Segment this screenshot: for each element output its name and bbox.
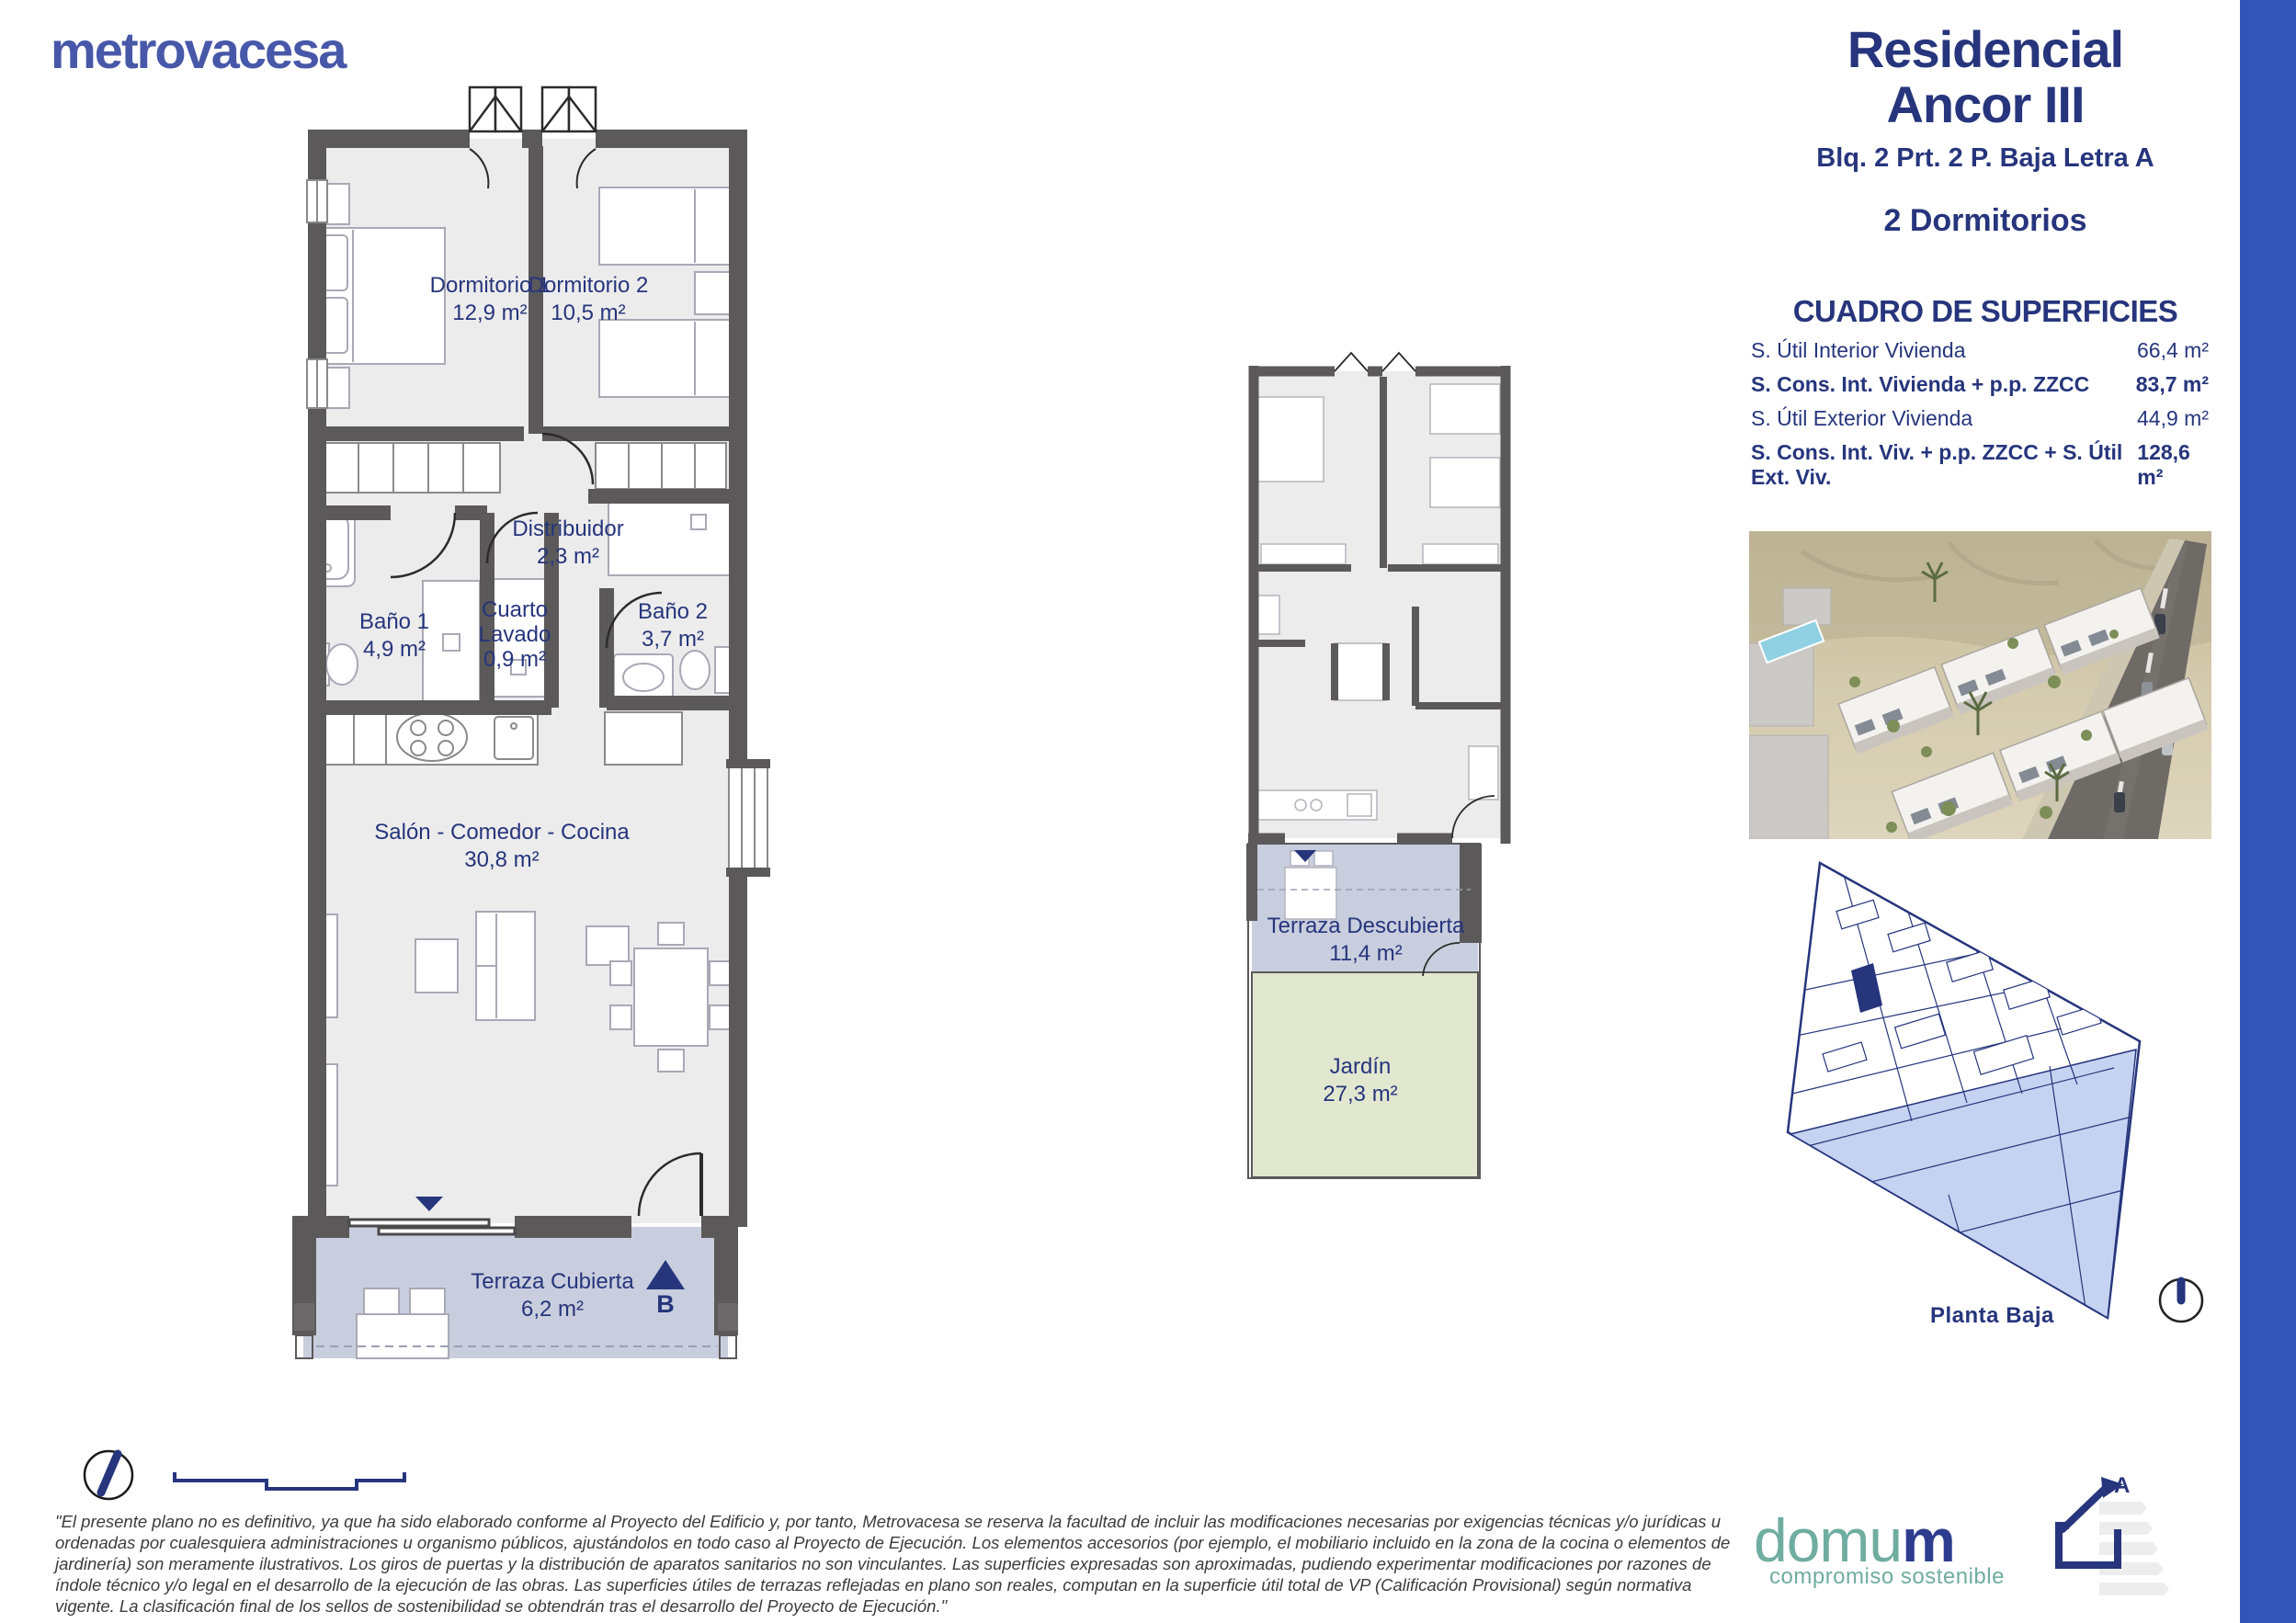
room-area: 27,3 m² — [1323, 1082, 1397, 1107]
domum-tagline: compromiso sostenible — [1769, 1564, 2005, 1590]
surface-value: 83,7 m² — [2136, 372, 2209, 397]
surface-value: 128,6 m² — [2137, 440, 2209, 490]
page-title-line1: Residencial — [1792, 22, 2178, 77]
legal-disclaimer: "El presente plano no es definitivo, ya … — [55, 1511, 1735, 1617]
surface-label: S. Útil Interior Vivienda — [1751, 338, 1966, 363]
surface-row: S. Cons. Int. Vivienda + p.p. ZZCC 83,7 … — [1751, 372, 2209, 406]
bedroom-count: 2 Dormitorios — [1792, 203, 2178, 239]
surfaces-table: S. Útil Interior Vivienda 66,4 m² S. Con… — [1751, 338, 2209, 474]
room-name: Baño 2 — [638, 599, 708, 624]
siteplan-compass-icon — [2160, 1279, 2202, 1322]
plan-graphics — [0, 0, 2296, 1623]
surface-row: S. Útil Interior Vivienda 66,4 m² — [1751, 338, 2209, 372]
room-name: Dormitorio 2 — [529, 273, 649, 298]
room-label-terraza-cubierta: Terraza Cubierta 6,2 m² — [471, 1269, 633, 1322]
unit-reference: Blq. 2 Prt. 2 P. Baja Letra A — [1792, 143, 2178, 174]
site-plan — [1783, 855, 2202, 1323]
room-label-bano1: Baño 1 4,9 m² — [359, 609, 429, 662]
room-label-salon: Salón - Comedor - Cocina 30,8 m² — [374, 820, 629, 872]
room-area: 11,4 m² — [1267, 941, 1465, 966]
room-name: Salón - Comedor - Cocina — [374, 820, 629, 845]
room-area: 2,3 m² — [512, 544, 623, 569]
surface-label: S. Cons. Int. Viv. + p.p. ZZCC + S. Útil… — [1751, 440, 2137, 490]
room-label-bano2: Baño 2 3,7 m² — [638, 599, 708, 652]
room-area: 4,9 m² — [359, 637, 429, 662]
room-area: 3,7 m² — [638, 627, 708, 652]
floorplan-sheet: metrovacesa Residencial Ancor III Blq. 2… — [0, 0, 2296, 1623]
room-name: Terraza Cubierta — [471, 1269, 633, 1294]
room-label-cuarto-lavado: Cuarto Lavado 0,9 m² — [460, 597, 570, 672]
siteplan-caption: Planta Baja — [1930, 1303, 2054, 1329]
room-label-dormitorio2: Dormitorio 2 10,5 m² — [529, 273, 649, 325]
room-name: Cuarto Lavado — [479, 597, 551, 647]
room-label-jardin: Jardín 27,3 m² — [1323, 1054, 1397, 1107]
room-label-distribuidor: Distribuidor 2,3 m² — [512, 516, 623, 569]
metrovacesa-logo: metrovacesa — [51, 20, 345, 80]
page-title-line2: Ancor III — [1792, 77, 2178, 132]
entrance-marker-label: B — [656, 1290, 675, 1319]
energy-rating-letter: A — [2114, 1473, 2130, 1499]
room-area: 30,8 m² — [374, 847, 629, 872]
room-label-terraza-descubierta: Terraza Descubierta 11,4 m² — [1267, 914, 1465, 966]
room-name: Terraza Descubierta — [1267, 914, 1465, 938]
surface-value: 44,9 m² — [2137, 406, 2209, 431]
title-block: Residencial Ancor III Blq. 2 Prt. 2 P. B… — [1792, 22, 2178, 239]
surfaces-table-title: CUADRO DE SUPERFICIES — [1792, 294, 2178, 329]
surface-label: S. Útil Exterior Vivienda — [1751, 406, 1972, 431]
kitchen-counter — [317, 709, 682, 765]
room-name: Baño 1 — [359, 609, 429, 634]
aerial-render — [1749, 531, 2211, 850]
section-scale-line — [175, 1472, 404, 1489]
surface-row: S. Cons. Int. Viv. + p.p. ZZCC + S. Útil… — [1751, 440, 2209, 474]
room-name: Distribuidor — [512, 516, 623, 541]
right-accent-bar — [2240, 0, 2296, 1623]
surface-label: S. Cons. Int. Vivienda + p.p. ZZCC — [1751, 372, 2089, 397]
surface-value: 66,4 m² — [2137, 338, 2209, 363]
north-compass-icon — [85, 1451, 132, 1499]
room-area: 10,5 m² — [529, 301, 649, 325]
room-area: 0,9 m² — [460, 647, 570, 672]
room-area: 6,2 m² — [471, 1297, 633, 1322]
room-name: Jardín — [1330, 1054, 1392, 1079]
surface-row: S. Útil Exterior Vivienda 44,9 m² — [1751, 406, 2209, 440]
